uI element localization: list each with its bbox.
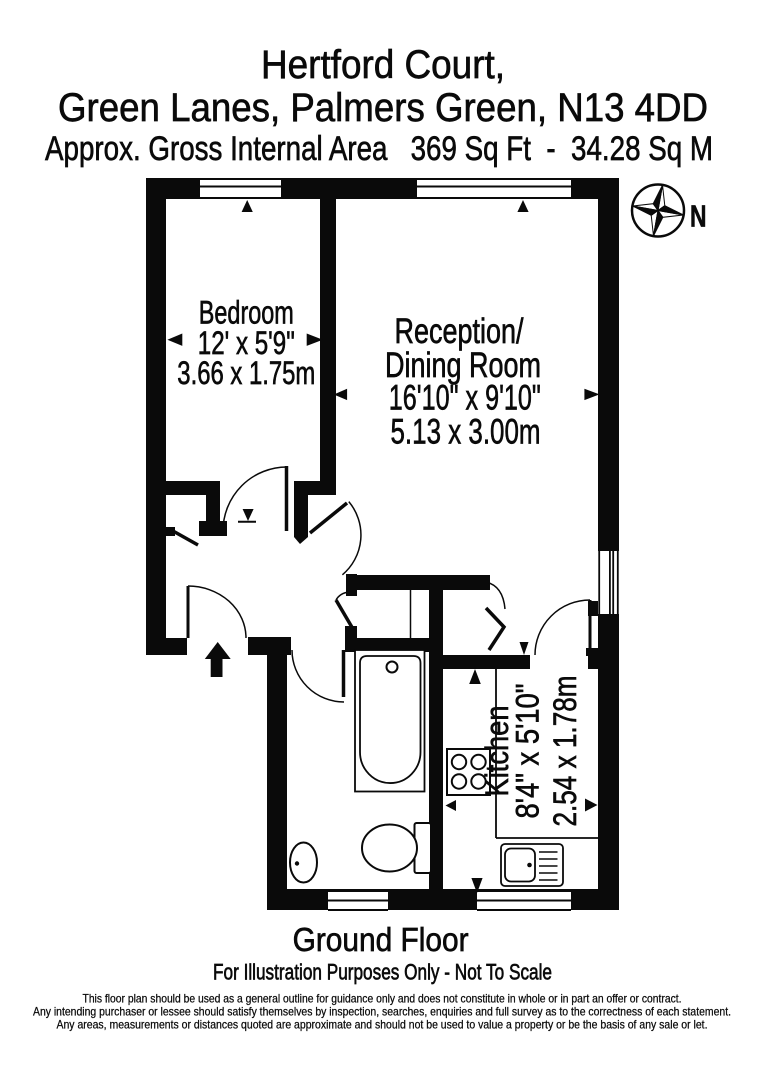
svg-text:Any areas, measurements or dis: Any areas, measurements or distances quo… xyxy=(57,1018,708,1032)
svg-text:N: N xyxy=(690,200,707,234)
svg-text:Hertford Court,: Hertford Court, xyxy=(261,43,505,87)
svg-text:For Illustration Purposes Only: For Illustration Purposes Only - Not To … xyxy=(213,959,552,984)
svg-text:3.66 x 1.75m: 3.66 x 1.75m xyxy=(177,355,315,391)
svg-text:8'4" x 5'10": 8'4" x 5'10" xyxy=(510,684,546,819)
svg-text:Ground Floor: Ground Floor xyxy=(293,921,469,958)
svg-text:This floor plan should be used: This floor plan should be used as a gene… xyxy=(83,992,682,1006)
svg-text:2.54 x 1.78m: 2.54 x 1.78m xyxy=(547,676,583,827)
svg-text:Approx. Gross Internal Area: Approx. Gross Internal Area 369 Sq Ft - … xyxy=(45,130,713,168)
svg-text:Any intending purchaser or les: Any intending purchaser or lessee should… xyxy=(33,1005,731,1019)
svg-text:Green Lanes, Palmers Green, N1: Green Lanes, Palmers Green, N13 4DD xyxy=(58,86,708,130)
svg-text:5.13 x 3.00m: 5.13 x 3.00m xyxy=(391,412,541,452)
